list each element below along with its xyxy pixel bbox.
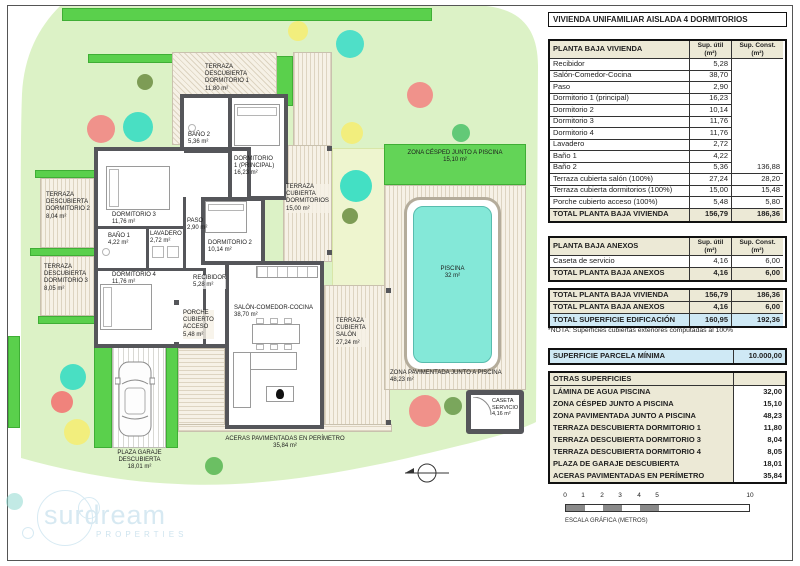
- hedge-bar-2: [30, 248, 95, 256]
- table-cell: Baño 1: [550, 151, 690, 163]
- hedge-garage-left: [94, 344, 112, 448]
- label-dormitorio-2: DORMITORIO 2 10,14 m²: [208, 240, 252, 254]
- table-cell: 15,10: [734, 398, 785, 410]
- table-cell: 4,16: [690, 256, 732, 268]
- table-cell: 28,20: [732, 174, 783, 186]
- table-row: ACERAS PAVIMENTADAS EN PERÍMETRO35,84: [550, 470, 785, 482]
- table-cell: 48,23: [734, 410, 785, 422]
- label-terraza-descubierta-dorm1: TERRAZA DESCUBIERTA DORMITORIO 1 11,80 m…: [205, 64, 249, 93]
- logo-subtitle: PROPERTIES: [96, 530, 187, 539]
- dining-table: [252, 324, 300, 344]
- table-cell: 32,00: [734, 386, 785, 398]
- pool: [404, 197, 501, 372]
- label-salon: SALÓN-COMEDOR-COCINA 38,70 m²: [234, 305, 313, 319]
- car: [115, 360, 155, 438]
- table-cell: TERRAZA DESCUBIERTA DORMITORIO 4: [550, 446, 734, 458]
- north-arrow-icon: [405, 462, 449, 484]
- table-row: Terraza cubierta dormitorios (100%)15,00…: [550, 186, 785, 198]
- table-cell: TERRAZA DESCUBIERTA DORMITORIO 1: [550, 422, 734, 434]
- table-cell: 4,22: [690, 151, 732, 163]
- table-cell: Terraza cubierta salón (100%): [550, 174, 690, 186]
- label-caseta-servicio: CASETA SERVICIO 4,16 m²: [492, 398, 518, 418]
- summary-row-vivienda: TOTAL PLANTA BAJA VIVIENDA 156,79 186,36: [550, 290, 785, 302]
- deck-post: [386, 420, 391, 425]
- hedge-bar-1: [35, 170, 95, 178]
- chair: [270, 344, 278, 350]
- table-cell: 15,00: [690, 186, 732, 198]
- table-row: Porche cubierto acceso (100%)5,485,80: [550, 197, 785, 209]
- parcela-row: SUPERFICIE PARCELA MÍNIMA 10.000,00: [550, 350, 785, 363]
- summary-row-anexos: TOTAL PLANTA BAJA ANEXOS 4,16 6,00: [550, 302, 785, 314]
- tree: [341, 122, 363, 144]
- table-cell: Caseta de servicio: [550, 256, 690, 268]
- table-cell: [732, 59, 783, 71]
- column-header-sup-util: Sup. útil (m²): [690, 41, 732, 59]
- scale-tick-2: 2: [600, 492, 604, 499]
- hedge-bar-3: [38, 316, 95, 324]
- table-note: *NOTA: Superficies cubiertas exteriores …: [548, 327, 787, 334]
- table-cell: 2,90: [690, 82, 732, 94]
- tree: [452, 124, 470, 142]
- tree: [60, 364, 86, 390]
- table-cell: [732, 128, 783, 140]
- table-cell: PLAZA DE GARAJE DESCUBIERTA: [550, 458, 734, 470]
- tree: [51, 391, 73, 413]
- tree: [340, 170, 372, 202]
- table-cell: Dormitorio 4: [550, 128, 690, 140]
- table-cell: LÁMINA DE AGUA PISCINA: [550, 386, 734, 398]
- tree: [64, 419, 90, 445]
- label-plaza-garaje: PLAZA GARAJE DESCUBIERTA 18,01 m²: [92, 450, 187, 472]
- table-row: Recibidor5,28: [550, 59, 785, 71]
- tree: [409, 395, 441, 427]
- table-cell: Terraza cubierta dormitorios (100%): [550, 186, 690, 198]
- wall-paso-left: [183, 197, 186, 268]
- wall-bano1-lavadero: [146, 226, 149, 271]
- hedge-top: [62, 8, 432, 21]
- bed-dormitorio-2: [205, 201, 247, 233]
- tree: [288, 21, 308, 41]
- scale-segment: [603, 505, 622, 511]
- logo-wordmark: surdream: [44, 500, 166, 531]
- table-cell: [732, 140, 783, 152]
- deck-post: [327, 250, 332, 255]
- chair: [256, 344, 264, 350]
- toilet-bano2: [188, 124, 196, 132]
- bed-dormitorio-1: [234, 104, 280, 146]
- tree: [407, 82, 433, 108]
- table-cell: Paso: [550, 82, 690, 94]
- table-cell: [732, 71, 783, 83]
- scale-tick-1: 1: [581, 492, 585, 499]
- table-cell: 6,00: [732, 256, 783, 268]
- table-body: LÁMINA DE AGUA PISCINA32,00ZONA CÉSPED J…: [550, 386, 785, 482]
- toilet-bano1: [102, 248, 110, 256]
- bed-dormitorio-3: [106, 166, 170, 210]
- deck-post: [386, 288, 391, 293]
- table-cell: ZONA CÉSPED JUNTO A PISCINA: [550, 398, 734, 410]
- table-cell: [732, 105, 783, 117]
- table-cell: 5,36: [690, 163, 732, 175]
- table-row: ZONA CÉSPED JUNTO A PISCINA15,10: [550, 398, 785, 410]
- table-cell: Baño 2: [550, 163, 690, 175]
- label-bano-2: BAÑO 2 5,36 m²: [188, 132, 210, 146]
- deck-terraza-cubierta-salon: [324, 285, 390, 432]
- table-cell: 18,01: [734, 458, 785, 470]
- label-terraza-descubierta-dorm3: TERRAZA DESCUBIERTA DORMITORIO 3 8,05 m²: [44, 264, 88, 293]
- table-row: Caseta de servicio4,166,00: [550, 256, 785, 268]
- label-terraza-descubierta-dorm2: TERRAZA DESCUBIERTA DORMITORIO 2 8,04 m²: [46, 192, 90, 221]
- table-cell: 5,28: [690, 59, 732, 71]
- table-title: PLANTA BAJA ANEXOS: [550, 238, 690, 256]
- table-row: Baño 25,36136,88: [550, 163, 785, 175]
- table-cell: 11,80: [734, 422, 785, 434]
- table-row: Dormitorio 1 (principal)16,23: [550, 94, 785, 106]
- scale-bar: [565, 504, 750, 512]
- table-cell: ZONA PAVIMENTADA JUNTO A PISCINA: [550, 410, 734, 422]
- table-cell: [732, 117, 783, 129]
- table-row: Terraza cubierta salón (100%)27,2428,20: [550, 174, 785, 186]
- scale-tick-10: 10: [746, 492, 753, 499]
- table-title: PLANTA BAJA VIVIENDA: [550, 41, 690, 59]
- column-header-sup-const: Sup. Const. (m²): [732, 41, 783, 59]
- scale-bar-label: ESCALA GRÁFICA (METROS): [565, 518, 648, 524]
- label-bano-1: BAÑO 1 4,22 m²: [108, 233, 130, 247]
- table-header: PLANTA BAJA VIVIENDA Sup. útil (m²) Sup.…: [550, 41, 785, 59]
- table-row: Baño 14,22: [550, 151, 785, 163]
- tree: [205, 457, 223, 475]
- door-arc-icon: [473, 397, 493, 417]
- scale-segment: [640, 505, 659, 511]
- label-dormitorio-1: DORMITORIO 1 (PRINCIPAL) 16,23 m²: [234, 156, 274, 178]
- table-row: Salón-Comedor-Cocina38,70: [550, 71, 785, 83]
- table-cell: ACERAS PAVIMENTADAS EN PERÍMETRO: [550, 470, 734, 482]
- table-parcela-minima: SUPERFICIE PARCELA MÍNIMA 10.000,00: [548, 348, 787, 365]
- table-cell: [732, 82, 783, 94]
- hedge-terrace-left: [88, 54, 184, 63]
- table-planta-baja-vivienda: PLANTA BAJA VIVIENDA Sup. útil (m²) Sup.…: [548, 39, 787, 223]
- label-terraza-cubierta-salon: TERRAZA CUBIERTA SALÓN 27,24 m²: [336, 318, 366, 347]
- table-planta-baja-anexos: PLANTA BAJA ANEXOS Sup. útil (m²) Sup. C…: [548, 236, 787, 282]
- label-paso: PASO 2,90 m²: [187, 218, 207, 232]
- table-row: Dormitorio 210,14: [550, 105, 785, 117]
- tree: [444, 397, 462, 415]
- table-body: Recibidor5,28Salón-Comedor-Cocina38,70Pa…: [550, 59, 785, 209]
- table-cell: 8,05: [734, 446, 785, 458]
- table-cell: 15,48: [732, 186, 783, 198]
- washer: [152, 246, 164, 258]
- tree: [87, 115, 115, 143]
- label-porche: PORCHE CUBIERTO ACCESO 5,48 m²: [183, 310, 214, 339]
- scale-tick-0: 0: [563, 492, 567, 499]
- table-cell: Dormitorio 1 (principal): [550, 94, 690, 106]
- sheet-title: VIVIENDA UNIFAMILIAR AISLADA 4 DORMITORI…: [548, 12, 787, 27]
- table-cell: Recibidor: [550, 59, 690, 71]
- label-zona-cesped: ZONA CÉSPED JUNTO A PISCINA 15,10 m²: [384, 150, 526, 164]
- table-cell: [732, 151, 783, 163]
- deck-aceras-left: [178, 348, 225, 432]
- table-cell: 136,88: [732, 163, 783, 175]
- wall-bano2-bottom: [184, 150, 230, 153]
- label-zona-pavimentada: ZONA PAVIMENTADA JUNTO A PISCINA 48,23 m…: [390, 370, 502, 384]
- label-aceras: ACERAS PAVIMENTADAS EN PERÍMETRO 35,84 m…: [180, 436, 390, 450]
- table-cell: Dormitorio 3: [550, 117, 690, 129]
- sofa-arm: [233, 352, 251, 408]
- column-header-sup-const: Sup. Const. (m²): [732, 238, 783, 256]
- column-header-sup-util: Sup. útil (m²): [690, 238, 732, 256]
- table-cell: 27,24: [690, 174, 732, 186]
- scale-segment: [566, 505, 585, 511]
- table-total-row: TOTAL PLANTA BAJA ANEXOS 4,16 6,00: [550, 268, 785, 281]
- table-cell: Lavadero: [550, 140, 690, 152]
- table-cell: 16,23: [690, 94, 732, 106]
- label-terraza-cubierta-dormitorios: TERRAZA CUBIERTA DORMITORIOS 15,00 m²: [286, 184, 329, 213]
- table-otras-superficies: OTRAS SUPERFICIES LÁMINA DE AGUA PISCINA…: [548, 371, 787, 484]
- summary-row-total-edificacion: TOTAL SUPERFICIE EDIFICACIÓN 160,95 192,…: [550, 314, 785, 326]
- tree: [137, 74, 153, 90]
- table-cell: 38,70: [690, 71, 732, 83]
- pool-water: [413, 206, 492, 363]
- table-cell: 11,76: [690, 128, 732, 140]
- table-header: PLANTA BAJA ANEXOS Sup. útil (m²) Sup. C…: [550, 238, 785, 256]
- table-cell: 2,72: [690, 140, 732, 152]
- tree: [342, 208, 358, 224]
- table-row: PLAZA DE GARAJE DESCUBIERTA18,01: [550, 458, 785, 470]
- table-row: Dormitorio 411,76: [550, 128, 785, 140]
- wall-bano2-dorm1: [228, 98, 232, 197]
- deck-post: [174, 300, 179, 305]
- dryer: [167, 246, 179, 258]
- table-row: LÁMINA DE AGUA PISCINA32,00: [550, 386, 785, 398]
- chair: [284, 344, 292, 350]
- table-cell: TERRAZA DESCUBIERTA DORMITORIO 3: [550, 434, 734, 446]
- label-dormitorio-4: DORMITORIO 4 11,76 m²: [112, 272, 156, 286]
- table-summary: TOTAL PLANTA BAJA VIVIENDA 156,79 186,36…: [548, 288, 787, 328]
- table-cell: [732, 94, 783, 106]
- table-cell: Salón-Comedor-Cocina: [550, 71, 690, 83]
- scale-tick-3: 3: [618, 492, 622, 499]
- deck-post: [327, 146, 332, 151]
- table-total-row: TOTAL PLANTA BAJA VIVIENDA 156,79 186,36: [550, 209, 785, 222]
- table-body: Caseta de servicio4,166,00: [550, 256, 785, 268]
- label-piscina: PISCINA 32 m²: [404, 266, 501, 280]
- wall-dorm4-top: [98, 268, 206, 271]
- table-row: ZONA PAVIMENTADA JUNTO A PISCINA48,23: [550, 410, 785, 422]
- label-recibidor: RECIBIDOR 5,28 m²: [193, 275, 226, 289]
- table-header: OTRAS SUPERFICIES: [550, 373, 785, 386]
- table-cell: Porche cubierto acceso (100%): [550, 197, 690, 209]
- logo-dot: [6, 493, 23, 510]
- table-cell: 35,84: [734, 470, 785, 482]
- table-cell: 8,04: [734, 434, 785, 446]
- deck-post: [174, 342, 179, 347]
- table-row: TERRAZA DESCUBIERTA DORMITORIO 111,80: [550, 422, 785, 434]
- kitchen-counter: [256, 266, 318, 278]
- table-title: OTRAS SUPERFICIES: [550, 373, 734, 386]
- tree: [123, 112, 153, 142]
- table-cell: 11,76: [690, 117, 732, 129]
- scale-tick-5: 5: [655, 492, 659, 499]
- table-cell: 5,48: [690, 197, 732, 209]
- label-dormitorio-3: DORMITORIO 3 11,76 m²: [112, 212, 156, 226]
- table-cell: 5,80: [732, 197, 783, 209]
- scale-tick-4: 4: [637, 492, 641, 499]
- tree: [336, 30, 364, 58]
- table-row: Paso2,90: [550, 82, 785, 94]
- table-cell: 10,14: [690, 105, 732, 117]
- lawn-patch-right: [332, 148, 390, 290]
- pet-figure: [276, 389, 284, 399]
- wall-dorm3-bottom: [98, 226, 186, 229]
- table-row: TERRAZA DESCUBIERTA DORMITORIO 38,04: [550, 434, 785, 446]
- table-row: Dormitorio 311,76: [550, 117, 785, 129]
- table-row: Lavadero2,72: [550, 140, 785, 152]
- label-lavadero: LAVADERO 2,72 m²: [150, 231, 182, 245]
- table-cell: Dormitorio 2: [550, 105, 690, 117]
- table-row: TERRAZA DESCUBIERTA DORMITORIO 48,05: [550, 446, 785, 458]
- bed-dormitorio-4: [100, 284, 152, 330]
- hedge-garage-right: [166, 344, 178, 448]
- hedge-left-edge: [8, 336, 20, 428]
- logo-circle-tiny: [22, 527, 34, 539]
